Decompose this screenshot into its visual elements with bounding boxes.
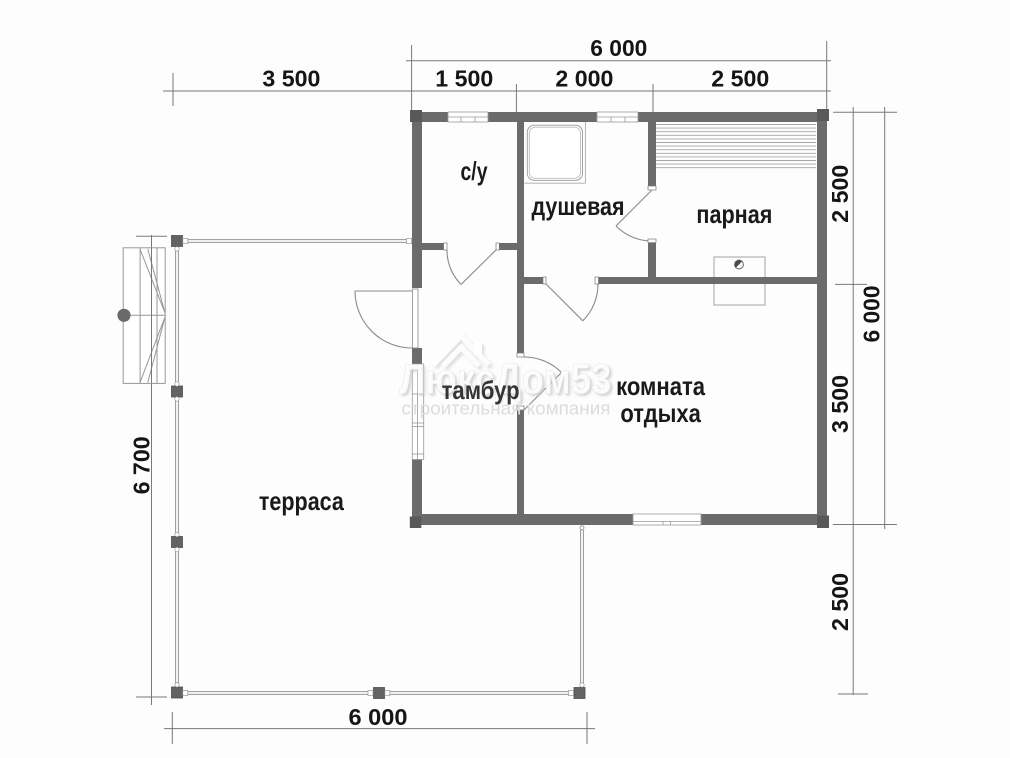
svg-text:6 000: 6 000: [349, 704, 408, 730]
svg-text:2 500: 2 500: [827, 165, 853, 223]
svg-text:тамбур: тамбур: [442, 375, 520, 405]
svg-text:комната: комната: [616, 371, 705, 401]
svg-text:парная: парная: [696, 199, 772, 229]
svg-text:3 500: 3 500: [262, 65, 320, 91]
svg-text:1 500: 1 500: [435, 65, 493, 91]
svg-text:душевая: душевая: [532, 191, 625, 221]
svg-text:2 000: 2 000: [555, 65, 613, 91]
svg-text:6 700: 6 700: [129, 436, 155, 494]
svg-text:3 500: 3 500: [827, 375, 853, 433]
svg-text:2 500: 2 500: [827, 573, 853, 631]
svg-text:отдыха: отдыха: [620, 398, 701, 428]
svg-text:терраса: терраса: [259, 486, 344, 516]
svg-text:6 000: 6 000: [590, 35, 647, 61]
svg-text:6 000: 6 000: [859, 286, 885, 343]
svg-text:2 500: 2 500: [711, 65, 769, 91]
svg-text:с/у: с/у: [461, 156, 488, 186]
